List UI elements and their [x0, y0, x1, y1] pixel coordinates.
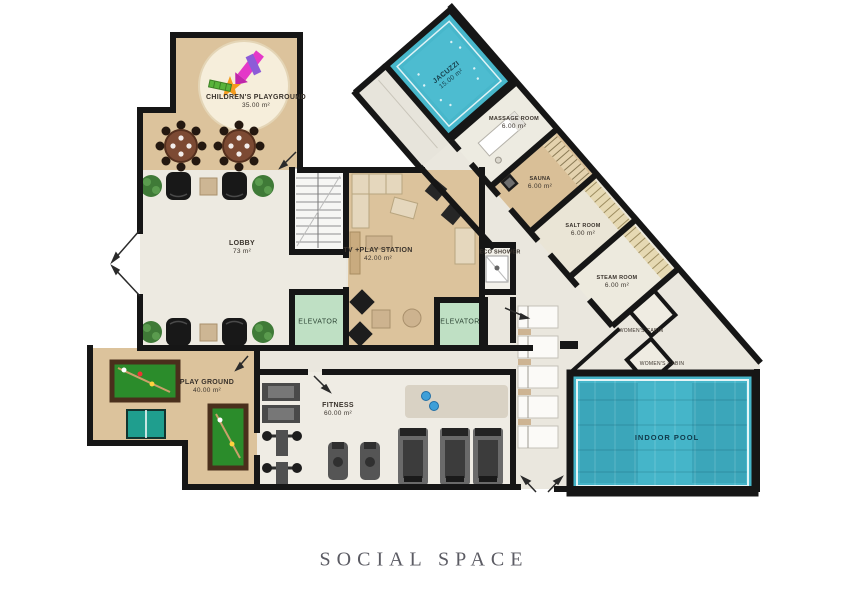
billiard-table: [112, 362, 178, 400]
room-area: 35.00 m²: [242, 102, 270, 110]
room-label-lobby: LOBBY 73 m²: [229, 239, 255, 257]
room-label-steam-room: STEAM ROOM 6.00 m²: [597, 275, 638, 291]
room-name: INDOOR POOL: [635, 433, 699, 443]
room-area: 73 m²: [233, 248, 251, 256]
room-name: ELEVATOR: [298, 317, 337, 326]
room-name: STEAM ROOM: [597, 275, 638, 282]
room-label-salt-room: SALT ROOM 6.00 m²: [565, 223, 600, 239]
treadmill: [398, 428, 428, 485]
room-label-elevator-right: ELEVATOR: [440, 317, 479, 326]
room-name: MASSAGE ROOM: [489, 116, 539, 123]
room-label-massage-room: MASSAGE ROOM 6.00 m²: [489, 116, 539, 132]
room-name: LOBBY: [229, 239, 255, 248]
side-table: [200, 178, 217, 195]
treadmill: [473, 428, 503, 485]
room-name: WOMEN'S CABIN: [619, 328, 664, 335]
room-name: TV +PLAY STATION: [343, 246, 412, 255]
table-tennis-table: [127, 410, 165, 438]
room-label-sauna: SAUNA 6.00 m²: [528, 176, 552, 192]
room-label-elevator-left: ELEVATOR: [298, 317, 337, 326]
room-name: ELEVATOR: [440, 317, 479, 326]
room-name: CHILDREN'S PLAYGROUND: [206, 93, 306, 102]
plan-title: SOCIAL SPACE: [320, 549, 529, 572]
room-label-indoor-pool: INDOOR POOL: [635, 433, 699, 443]
room-name: ECO SHOWER: [479, 249, 520, 256]
room-name: SAUNA: [529, 176, 550, 183]
room-label-womens-cabin-lower: WOMEN'S CABIN: [640, 361, 685, 368]
exercise-bike: [360, 442, 380, 480]
side-table: [200, 324, 217, 341]
room-area: 40.00 m²: [193, 387, 221, 395]
exercise-bike: [328, 442, 348, 480]
room-area: 6.00 m²: [571, 230, 595, 238]
room-area: 60.00 m²: [324, 410, 352, 418]
room-label-childrens-playground: CHILDREN'S PLAYGROUND 35.00 m²: [206, 93, 306, 111]
billiard-table: [210, 406, 246, 468]
room-label-fitness: FITNESS 60.00 m²: [322, 401, 354, 419]
eco-shower-stall: [486, 256, 508, 282]
deck-bench: [560, 341, 578, 349]
treadmill: [440, 428, 470, 485]
room-name: WOMEN'S CABIN: [640, 361, 685, 368]
room-name: SALT ROOM: [565, 223, 600, 230]
room-label-tv-play-station: TV +PLAY STATION 42.00 m²: [343, 246, 412, 264]
room-label-womens-cabin-upper: WOMEN'S CABIN: [619, 328, 664, 335]
room-name: PLAY GROUND: [180, 378, 234, 387]
room-name: FITNESS: [322, 401, 354, 410]
exercise-mat: [405, 385, 508, 418]
room-area: 6.00 m²: [502, 123, 526, 131]
room-label-eco-shower: ECO SHOWER: [479, 249, 520, 256]
room-label-play-ground: PLAY GROUND 40.00 m²: [180, 378, 234, 396]
room-area: 6.00 m²: [528, 183, 552, 191]
room-area: 42.00 m²: [364, 255, 392, 263]
playground-rug: [199, 41, 289, 131]
room-area: 6.00 m²: [605, 282, 629, 290]
floor-plan-page: CHILDREN'S PLAYGROUND 35.00 m² LOBBY 73 …: [0, 0, 848, 600]
floor-plan-drawing: [0, 0, 848, 600]
